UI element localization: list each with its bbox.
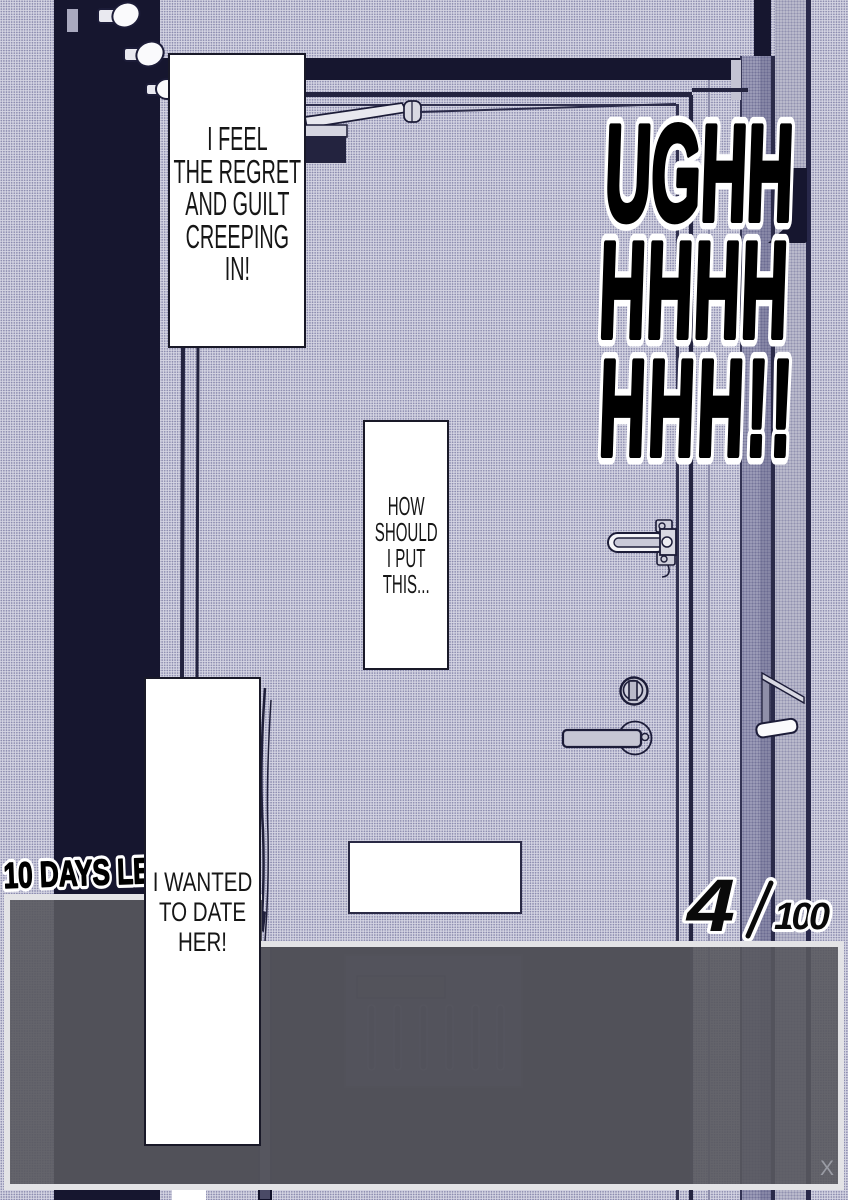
- svg-text:4: 4: [685, 864, 735, 947]
- svg-text:100: 100: [774, 896, 830, 938]
- svg-text:10 DAYS LE: 10 DAYS LE: [3, 850, 151, 896]
- svg-text:HHH!!: HHH!!: [597, 332, 795, 484]
